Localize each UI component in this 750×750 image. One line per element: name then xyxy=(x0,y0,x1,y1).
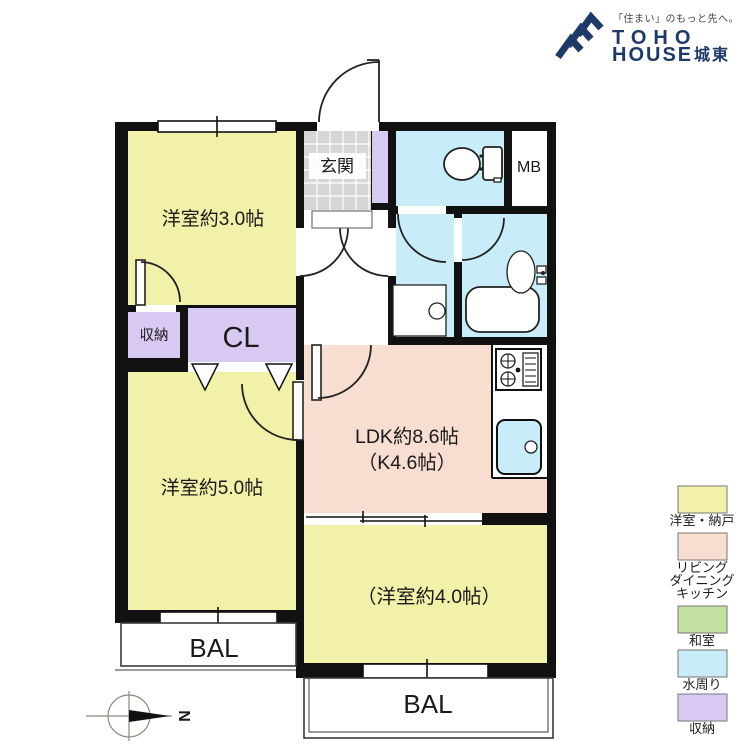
hall-ldk-opening xyxy=(312,337,372,345)
compass-north-label: N xyxy=(175,710,192,722)
legend-swatch-wet-area xyxy=(678,650,727,677)
toho-chevron-logo-icon xyxy=(558,17,601,57)
hall-washroom-opening xyxy=(388,228,396,276)
entry-door xyxy=(319,60,379,122)
west-room3-label: 洋室約3.0帖 xyxy=(162,208,264,230)
ldk-label-line1: LDK約8.6帖 xyxy=(355,426,459,448)
logo-tagline: 「住まい」のもっと先へ。 xyxy=(613,12,739,25)
west-room5-label: 洋室約5.0帖 xyxy=(161,477,263,499)
legend-swatch-west-room xyxy=(678,486,727,513)
compass: N xyxy=(86,691,192,741)
washing-machine-icon xyxy=(393,285,446,336)
toho-house-logo: 「住まい」のもっと先へ。 TOHO HOUSE 城東 xyxy=(558,12,739,66)
entrance-step xyxy=(312,211,372,228)
floor-plan-svg: 「住まい」のもっと先へ。 TOHO HOUSE 城東 xyxy=(0,0,750,750)
hallway-floor xyxy=(304,210,388,345)
kitchen-sink-icon xyxy=(497,420,541,474)
legend-label-wet-area: 水周り xyxy=(682,677,721,692)
storage-door-opening xyxy=(136,305,176,312)
toilet-icon xyxy=(444,147,502,182)
legend-label-tatami: 和室 xyxy=(689,633,715,648)
entrance-label: 玄関 xyxy=(320,157,354,176)
bath-door-opening xyxy=(454,218,462,262)
logo-name-line2: HOUSE xyxy=(612,44,693,66)
legend-label-storage: 収納 xyxy=(689,721,715,736)
legend-swatch-tatami xyxy=(678,606,727,633)
meter-box-label: MB xyxy=(517,159,541,176)
sliding-door-ldk-west4 xyxy=(304,511,482,527)
balcony-left-label: BAL xyxy=(189,633,238,663)
logo-region: 城東 xyxy=(694,45,730,64)
stove-icon xyxy=(496,349,541,390)
west-room4-label: （洋室約4.0帖） xyxy=(357,586,501,608)
shoe-cabinet xyxy=(372,131,388,203)
legend-label-ldk-3: キッチン xyxy=(676,586,728,601)
legend-swatch-ldk xyxy=(678,533,727,560)
closet-label: CL xyxy=(222,322,259,354)
hall-west3-opening xyxy=(296,228,304,276)
ldk-label-line2: （K4.6帖） xyxy=(358,452,457,474)
washroom-door-opening xyxy=(398,206,446,214)
legend-label-west-room: 洋室・納戸 xyxy=(669,513,734,528)
floor-plan-page: 「住まい」のもっと先へ。 TOHO HOUSE 城東 xyxy=(0,0,750,750)
entry-door-opening xyxy=(317,122,379,131)
storage-label: 収納 xyxy=(140,327,169,344)
balcony-bottom-label: BAL xyxy=(403,689,452,719)
legend: 洋室・納戸 リビング ダイニング キッチン 和室 水周り 収納 xyxy=(669,486,734,736)
legend-swatch-storage xyxy=(678,694,727,721)
